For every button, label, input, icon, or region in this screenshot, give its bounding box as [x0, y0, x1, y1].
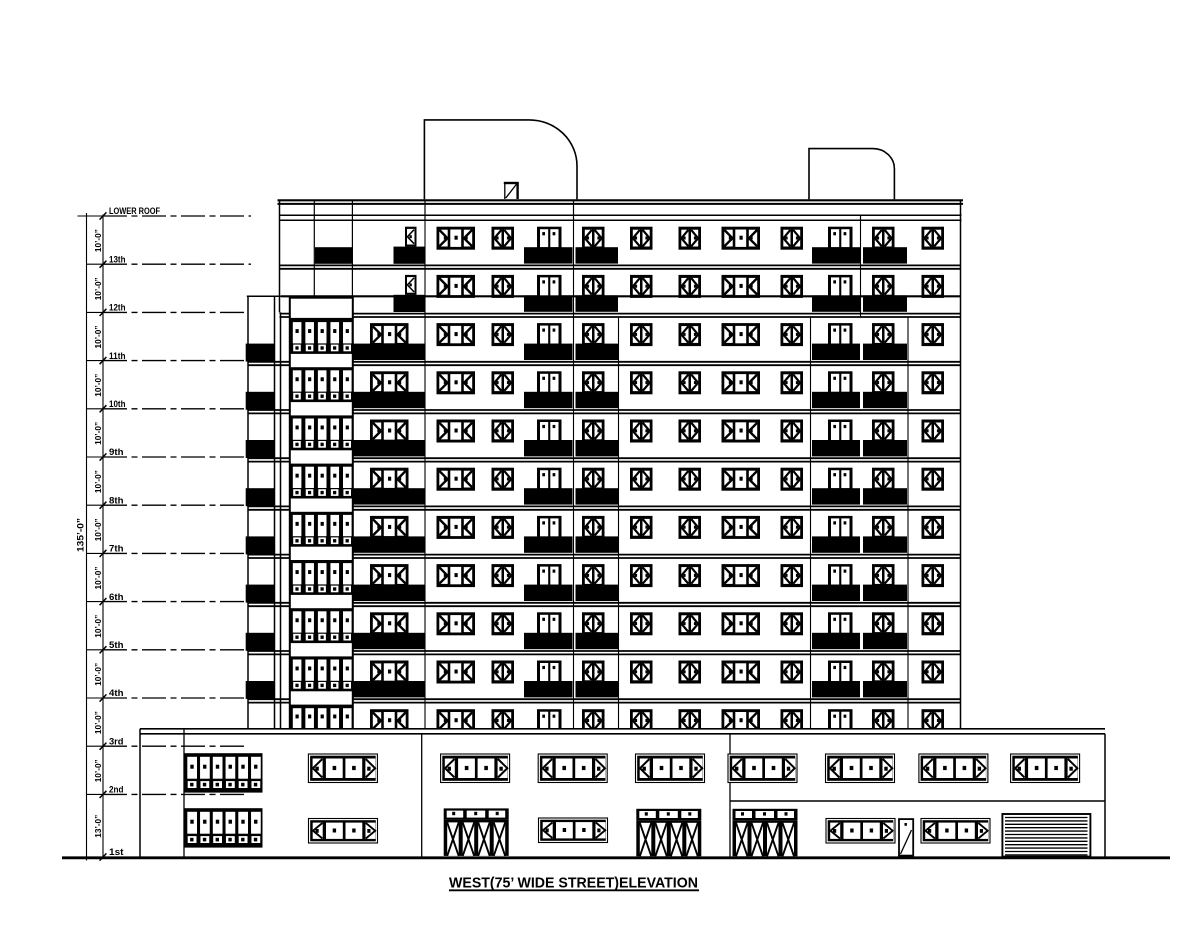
- svg-text:13th: 13th: [109, 254, 126, 264]
- svg-text:WEST(75’ WIDE STREET)ELEVATION: WEST(75’ WIDE STREET)ELEVATION: [449, 875, 698, 892]
- svg-text:10’-0”: 10’-0”: [93, 229, 103, 252]
- svg-text:10’-0”: 10’-0”: [93, 374, 103, 397]
- svg-text:10’-0”: 10’-0”: [93, 711, 103, 734]
- svg-text:10’-0”: 10’-0”: [93, 277, 103, 300]
- svg-text:2nd: 2nd: [109, 785, 124, 795]
- svg-text:5th: 5th: [109, 640, 124, 650]
- svg-text:10th: 10th: [109, 399, 126, 409]
- svg-text:10’-0”: 10’-0”: [93, 567, 103, 590]
- svg-text:10’-0”: 10’-0”: [93, 759, 103, 782]
- svg-text:10’-0”: 10’-0”: [93, 326, 103, 349]
- svg-text:13’-0”: 13’-0”: [93, 815, 103, 838]
- svg-text:9th: 9th: [109, 447, 124, 457]
- svg-text:4th: 4th: [109, 688, 124, 698]
- svg-text:LOWER ROOF: LOWER ROOF: [109, 206, 160, 216]
- svg-text:6th: 6th: [109, 592, 124, 602]
- svg-text:10’-0”: 10’-0”: [93, 615, 103, 638]
- svg-text:12th: 12th: [109, 303, 126, 313]
- svg-text:11th: 11th: [109, 351, 126, 361]
- svg-text:8th: 8th: [109, 495, 124, 505]
- svg-text:10’-0”: 10’-0”: [93, 470, 103, 493]
- svg-text:1st: 1st: [109, 847, 124, 857]
- svg-text:10’-0”: 10’-0”: [93, 518, 103, 541]
- svg-text:135’-0”: 135’-0”: [76, 518, 87, 552]
- svg-text:10’-0”: 10’-0”: [93, 663, 103, 686]
- svg-text:10’-0”: 10’-0”: [93, 422, 103, 445]
- svg-text:7th: 7th: [109, 544, 124, 554]
- svg-text:3rd: 3rd: [109, 736, 124, 746]
